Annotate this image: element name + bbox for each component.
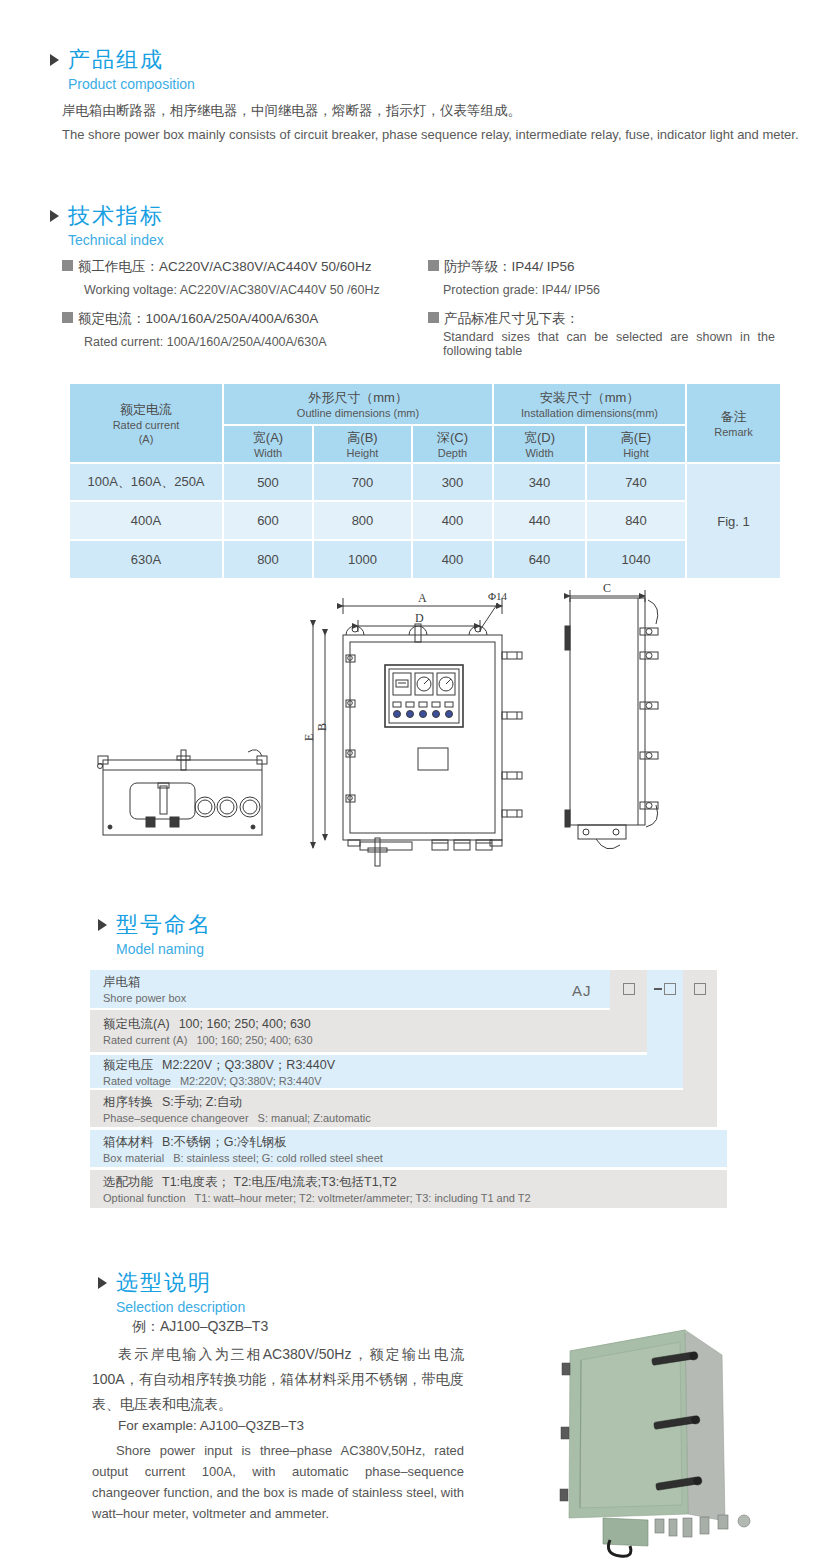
cell-value: 440 (494, 502, 585, 539)
col-header-depth-c: 深(C)Depth (413, 426, 492, 462)
dim-label-a: A (418, 591, 427, 605)
section-title-en: Model naming (116, 941, 212, 957)
tech-item-working-voltage-en: Working voltage: AC220V/AC380V/AC440V 50… (84, 283, 380, 297)
naming-row-box-material: 箱体材料B:不锈钢；G:冷轧钢板 Box materialB: stainles… (90, 1130, 727, 1167)
selection-example-en: For example: AJ100–Q3ZB–T3 (118, 1418, 304, 1433)
section-title-zh: 型号命名 (116, 912, 212, 938)
table-row: 630A 800 1000 400 640 1040 (70, 541, 780, 578)
table-row: 400A 600 800 400 440 840 (70, 502, 780, 539)
product-photo (548, 1293, 810, 1565)
col-header-height-b: 高(B)Height (314, 426, 411, 462)
col-header-width-a: 宽(A)Width (224, 426, 312, 462)
catalog-page: 产品组成 Product composition 岸电箱由断路器，相序继电器，中… (0, 0, 830, 1568)
code-dash (654, 988, 662, 990)
section-header-technical: 技术指标 Technical index (50, 203, 164, 248)
bullet-square-icon (428, 260, 439, 271)
tech-item-standard-sizes: 产品标准尺寸见下表： (428, 310, 579, 328)
dim-label-phi14: Φ14 (488, 590, 508, 602)
section-title-en: Technical index (68, 232, 164, 248)
dim-label-d: D (415, 611, 424, 625)
cell-value: 640 (494, 541, 585, 578)
section-header-selection: 选型说明 Selection description (98, 1270, 245, 1315)
col-header-remark: 备注 Remark (687, 384, 780, 462)
section-title-zh: 产品组成 (68, 47, 195, 73)
code-box (664, 983, 676, 995)
section-title-zh: 选型说明 (116, 1270, 245, 1296)
code-box (623, 983, 635, 995)
cell-value: 800 (314, 502, 411, 539)
bullet-square-icon (428, 312, 439, 323)
tech-item-standard-sizes-en: Standard sizes that can be selected are … (443, 330, 775, 358)
section-header-composition: 产品组成 Product composition (50, 47, 195, 92)
selection-example-zh: 例：AJ100–Q3ZB–T3 (132, 1318, 268, 1336)
table-row: 100A、160A、250A 500 700 300 340 740 Fig. … (70, 464, 780, 500)
cell-value: 340 (494, 464, 585, 500)
composition-body-en: The shore power box mainly consists of c… (62, 127, 799, 142)
naming-row-phase-sequence: 相序转换S:手动; Z:自动 Phase–sequence changeover… (90, 1090, 717, 1127)
section-title-zh: 技术指标 (68, 203, 164, 229)
tech-item-protection-grade-en: Protection grade: IP44/ IP56 (443, 283, 600, 297)
tech-item-rated-current: 额定电流：100A/160A/250A/400A/630A (62, 310, 318, 328)
model-naming-table: 岸电箱 Shore power box AJ 额定电流(A)100; 160; … (90, 970, 740, 1210)
col-header-installation: 安装尺寸（mm） Installation dimensions(mm) (494, 384, 685, 424)
cell-value: 700 (314, 464, 411, 500)
section-arrow-icon (50, 210, 59, 222)
section-title-en: Product composition (68, 76, 195, 92)
bullet-square-icon (62, 260, 73, 271)
section-header-naming: 型号命名 Model naming (98, 912, 212, 957)
dim-label-c: C (603, 581, 611, 595)
naming-row-shore-power-box: 岸电箱 Shore power box AJ (90, 970, 610, 1008)
cell-value: 400 (413, 541, 492, 578)
col-header-width-d: 宽(D)Width (494, 426, 585, 462)
col-header-height-e: 高(E)Hight (587, 426, 685, 462)
tech-item-protection-grade: 防护等级：IP44/ IP56 (428, 258, 575, 276)
cell-value: 740 (587, 464, 685, 500)
cell-value: 1040 (587, 541, 685, 578)
code-box (694, 983, 706, 995)
selection-body-zh: 表示岸电输入为三相AC380V/50Hz，额定输出电流100A，有自动相序转换功… (92, 1342, 464, 1417)
cell-remark: Fig. 1 (687, 464, 780, 578)
cell-value: 840 (587, 502, 685, 539)
model-prefix: AJ (572, 982, 592, 999)
naming-row-rated-current: 额定电流(A)100; 160; 250; 400; 630 Rated cur… (90, 1010, 647, 1052)
tech-item-rated-current-en: Rated current: 100A/160A/250A/400A/630A (84, 335, 327, 349)
col-header-outline: 外形尺寸（mm） Outline dimensions (mm) (224, 384, 492, 424)
cell-value: 1000 (314, 541, 411, 578)
section-title-en: Selection description (116, 1299, 245, 1315)
cell-current: 100A、160A、250A (70, 464, 222, 500)
dimension-drawing: A D Φ14 E B (60, 580, 800, 898)
cell-value: 500 (224, 464, 312, 500)
composition-body-zh: 岸电箱由断路器，相序继电器，中间继电器，熔断器，指示灯，仪表等组成。 (62, 102, 521, 120)
cell-value: 800 (224, 541, 312, 578)
section-arrow-icon (50, 54, 59, 66)
naming-row-optional-function: 选配功能T1:电度表； T2:电压/电流表;T3:包括T1,T2 Optiona… (90, 1170, 727, 1208)
naming-row-rated-voltage: 额定电压M2:220V；Q3:380V；R3:440V Rated voltag… (90, 1055, 683, 1088)
col-header-rated-current: 额定电流 Rated current (A) (70, 384, 222, 462)
cell-value: 400 (413, 502, 492, 539)
dim-label-e: E (302, 734, 316, 741)
cell-current: 400A (70, 502, 222, 539)
cell-value: 600 (224, 502, 312, 539)
section-arrow-icon (98, 919, 107, 931)
selection-body-en: Shore power input is three–phase AC380V,… (92, 1440, 464, 1524)
section-arrow-icon (98, 1277, 107, 1289)
cell-current: 630A (70, 541, 222, 578)
bullet-square-icon (62, 312, 73, 323)
size-table: 额定电流 Rated current (A) 外形尺寸（mm） Outline … (68, 382, 782, 580)
tech-item-working-voltage: 额工作电压：AC220V/AC380V/AC440V 50/60Hz (62, 258, 371, 276)
dim-label-b: B (315, 723, 329, 731)
cell-value: 300 (413, 464, 492, 500)
